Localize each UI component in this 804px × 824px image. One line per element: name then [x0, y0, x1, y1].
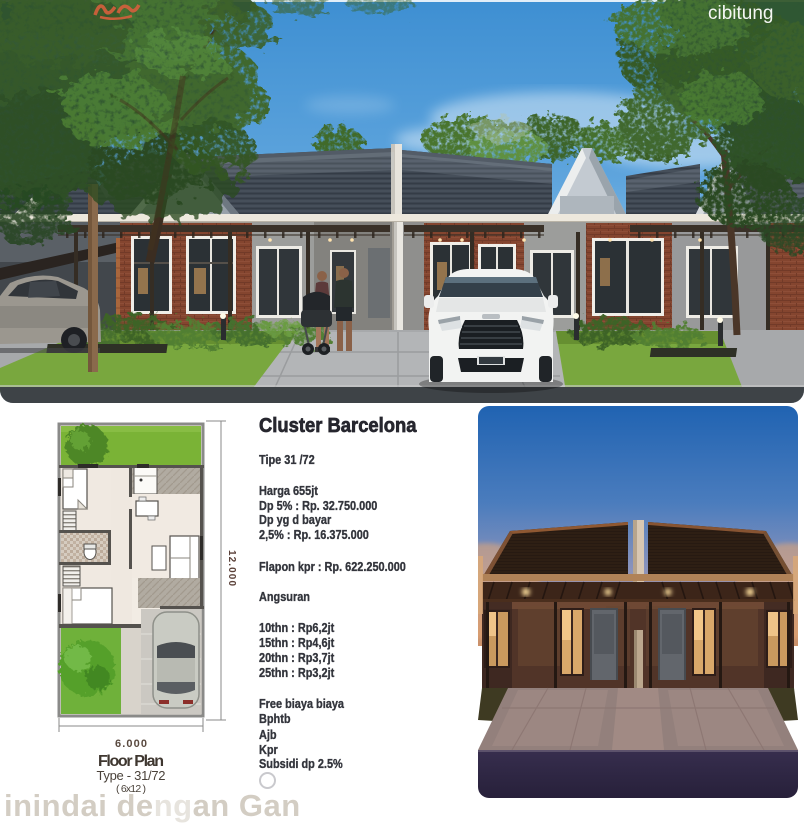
- svg-text:12.000: 12.000: [226, 550, 237, 586]
- svg-text:6.000: 6.000: [115, 738, 147, 750]
- svg-text:cibitung: cibitung: [708, 3, 774, 24]
- svg-text:Type - 31/72: Type - 31/72: [97, 768, 166, 783]
